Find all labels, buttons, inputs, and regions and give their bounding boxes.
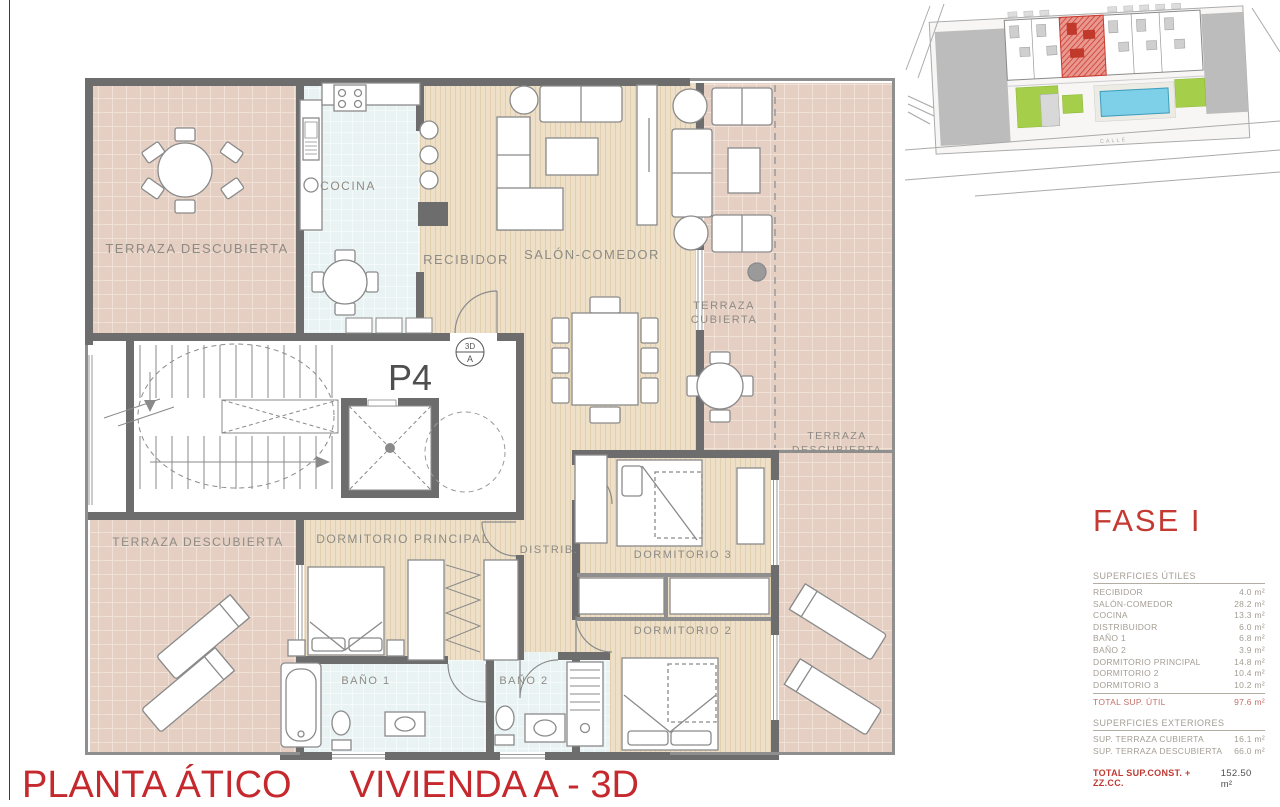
surfaces-table: SUPERFICIES ÚTILES RECIBIDOR4.0 m² SALÓN… <box>1093 571 1265 790</box>
surface-row: COCINA13.3 m² <box>1093 610 1265 622</box>
useful-total-row: TOTAL SUP. ÚTIL97.6 m² <box>1093 693 1265 709</box>
label-dorm3: DORMITORIO 3 <box>634 549 732 561</box>
pool <box>1100 88 1169 117</box>
grand-total-row: TOTAL SUP.CONST. + ZZ.CC.152.50 m² <box>1093 768 1265 790</box>
surface-row: DORMITORIO 310.2 m² <box>1093 680 1265 692</box>
page: 3D A P4 TERRAZA DESCUBIERTA COCINA RECIB… <box>0 0 1280 800</box>
label-dorm2: DORMITORIO 2 <box>634 625 732 637</box>
label-distrib: DISTRIB. <box>520 544 578 556</box>
label-terraza-bl: TERRAZA DESCUBIERTA <box>112 535 283 549</box>
bedroom2-furniture <box>622 658 718 750</box>
camera-marker: 3D A <box>456 338 484 366</box>
camera-marker-a: A <box>467 354 473 364</box>
phase-title: FASE I <box>1093 503 1201 539</box>
camera-marker-3d: 3D <box>465 342 475 351</box>
label-terraza-tl: TERRAZA DESCUBIERTA <box>105 241 288 256</box>
floor-plan-canvas: 3D A P4 TERRAZA DESCUBIERTA COCINA RECIB… <box>0 0 1280 800</box>
surface-row: RECIBIDOR4.0 m² <box>1093 587 1265 599</box>
label-salon: SALÓN-COMEDOR <box>524 247 660 262</box>
surface-row: DORMITORIO 210.4 m² <box>1093 668 1265 680</box>
surface-row: SUP. TERRAZA DESCUBIERTA66.0 m² <box>1093 746 1265 758</box>
label-bano2: BAÑO 2 <box>499 674 548 687</box>
exterior-surfaces-header: SUPERFICIES EXTERIORES <box>1093 718 1265 731</box>
surface-row: BAÑO 23.9 m² <box>1093 645 1265 657</box>
label-cocina: COCINA <box>320 179 376 193</box>
hall-storage <box>346 318 432 333</box>
surface-row: BAÑO 16.8 m² <box>1093 633 1265 645</box>
site-plan: CALLE <box>905 0 1280 196</box>
surface-row: SALÓN-COMEDOR28.2 m² <box>1093 599 1265 611</box>
highlighted-unit <box>1059 15 1106 77</box>
surface-row: SUP. TERRAZA CUBIERTA16.1 m² <box>1093 734 1265 746</box>
label-recibidor: RECIBIDOR <box>423 252 509 267</box>
label-terraza-cubierta-2: CUBIERTA <box>691 314 758 326</box>
drawing-title: PLANTA ÁTICOVIVIENDA A - 3D <box>22 764 639 807</box>
surface-row: DORMITORIO PRINCIPAL14.8 m² <box>1093 657 1265 669</box>
unit-label: P4 <box>388 357 432 398</box>
elevator <box>349 400 431 490</box>
label-dorm-principal: DORMITORIO PRINCIPAL <box>316 532 490 546</box>
surface-row: DISTRIBUIDOR6.0 m² <box>1093 622 1265 634</box>
label-terraza-cubierta-1: TERRAZA <box>693 300 755 312</box>
hall-closets <box>579 578 769 614</box>
label-terraza-der-1: TERRAZA <box>807 430 867 442</box>
label-bano1: BAÑO 1 <box>341 674 390 687</box>
bar-stools <box>420 121 438 189</box>
useful-surfaces-header: SUPERFICIES ÚTILES <box>1093 571 1265 584</box>
label-terraza-der-2: DESCUBIERTA <box>792 444 882 456</box>
